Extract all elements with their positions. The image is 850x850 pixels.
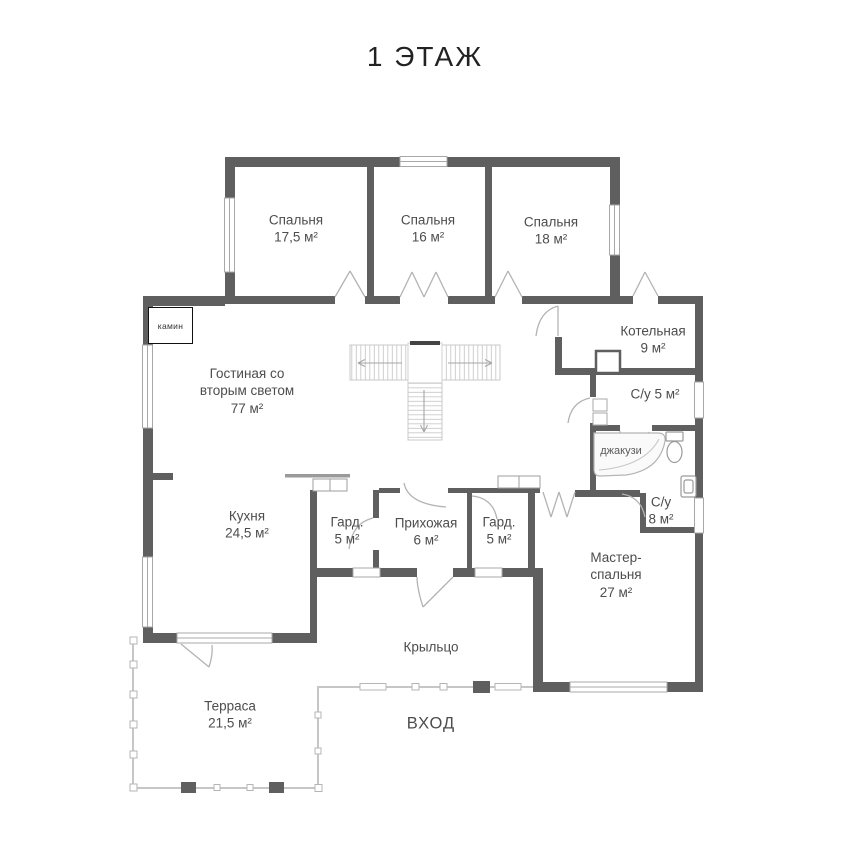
room-area: 5 м²: [331, 531, 364, 548]
room-area: 24,5 м²: [225, 525, 269, 542]
window: [475, 568, 502, 577]
room-name: ВХОД: [407, 713, 455, 734]
room-area: 27 м²: [590, 584, 641, 601]
room-label-master: Мастер- спальня 27 м²: [590, 549, 641, 601]
room-name: Терраса: [204, 698, 256, 715]
room-area: 8 м²: [648, 511, 673, 528]
wall: [533, 568, 543, 692]
window: [353, 568, 380, 577]
wall: [652, 425, 703, 431]
room-area: 18 м²: [524, 231, 578, 248]
duct-box: [596, 351, 620, 373]
door: [543, 492, 575, 517]
room-name: Прихожая: [395, 515, 458, 532]
wall: [373, 490, 379, 518]
washer-icon: [593, 399, 607, 425]
door: [404, 483, 446, 507]
room-label-hallway: Прихожая 6 м²: [395, 515, 458, 550]
room-name: Спальня: [269, 212, 323, 229]
room-name: С/у 5 м²: [630, 385, 679, 402]
room-area: 6 м²: [395, 532, 458, 549]
room-label-porch: Крыльцо: [403, 638, 458, 655]
wall: [143, 633, 177, 643]
fireplace-box: камин: [148, 307, 193, 344]
terrace-posts: [130, 637, 521, 792]
toilet-icon: [666, 432, 683, 463]
wall: [143, 473, 173, 480]
door: [335, 271, 365, 297]
room-name: Спальня: [401, 212, 455, 229]
room-label-terrace: Терраса 21,5 м²: [204, 698, 256, 733]
wall: [448, 296, 495, 304]
wall: [143, 296, 225, 306]
wall: [225, 296, 335, 304]
fireplace-label: камин: [158, 321, 183, 331]
wall: [143, 428, 153, 557]
terrace-pillar: [269, 782, 284, 793]
staircase: [350, 341, 500, 440]
page-title: 1 ЭТАЖ: [367, 41, 483, 73]
window: [695, 382, 704, 418]
room-name: Кухня: [225, 508, 269, 525]
wall: [533, 682, 570, 692]
room-area: 17,5 м²: [269, 229, 323, 246]
room-label-living: Гостиная со вторым светом 77 м²: [200, 365, 294, 417]
room-name: Гард.: [483, 514, 516, 531]
wall: [596, 425, 620, 431]
wall: [311, 568, 353, 577]
door: [633, 272, 658, 296]
room-name: Крыльцо: [403, 638, 458, 655]
stair-landing-edge: [410, 341, 440, 345]
wall: [667, 682, 703, 692]
room-area: 16 м²: [401, 229, 455, 246]
wall: [528, 477, 535, 570]
stair-flight-down: [408, 383, 442, 440]
door: [181, 644, 212, 667]
room-label-wc5: С/у 5 м²: [630, 385, 679, 402]
room-name: Котельная: [620, 323, 685, 340]
door: [568, 398, 590, 423]
stair-landing: [408, 343, 442, 383]
wall: [555, 337, 562, 375]
door: [417, 577, 453, 607]
room-label-wardrobe1: Гард. 5 м²: [331, 514, 364, 549]
wall: [562, 368, 703, 375]
window: [695, 498, 704, 533]
door: [495, 271, 522, 297]
room-name: Гард.: [331, 514, 364, 531]
wall: [380, 568, 417, 577]
wall: [590, 375, 596, 397]
doors: [181, 271, 658, 667]
wall: [522, 296, 633, 304]
wall: [373, 550, 379, 568]
wall: [379, 488, 400, 493]
terrace-border: [133, 640, 533, 788]
room-name: вторым светом: [200, 382, 294, 399]
wall: [310, 490, 317, 643]
room-name: С/у: [648, 494, 673, 511]
room-label-bedroom1: Спальня 17,5 м²: [269, 212, 323, 247]
wall: [448, 488, 540, 493]
porch-pillar: [473, 681, 490, 693]
sink-icon: [681, 476, 696, 497]
room-name: Мастер-: [590, 549, 641, 566]
entrance-label: ВХОД: [407, 713, 455, 734]
room-area: 21,5 м²: [204, 715, 256, 732]
wall: [365, 296, 400, 304]
room-label-boiler: Котельная 9 м²: [620, 323, 685, 358]
room-label-bedroom3: Спальня 18 м²: [524, 214, 578, 249]
terrace-pillar: [181, 782, 196, 793]
room-area: 9 м²: [620, 340, 685, 357]
wall: [367, 167, 374, 296]
terrace-outline: [130, 637, 533, 793]
room-area: 5 м²: [483, 531, 516, 548]
room-label-bedroom2: Спальня 16 м²: [401, 212, 455, 247]
wall: [467, 493, 472, 570]
wall: [285, 474, 350, 478]
room-area: 77 м²: [200, 400, 294, 417]
room-label-kitchen: Кухня 24,5 м²: [225, 508, 269, 543]
room-name: Спальня: [524, 214, 578, 231]
floor-plan: 1 ЭТАЖ: [0, 0, 850, 850]
room-label-wc8: С/у 8 м²: [648, 494, 673, 529]
room-label-jacuzzi: джакузи: [600, 444, 642, 458]
room-name: Гостиная со: [200, 365, 294, 382]
room-name: джакузи: [600, 444, 642, 458]
door: [400, 272, 448, 297]
room-name: спальня: [590, 566, 641, 583]
wall: [453, 568, 475, 577]
wall: [485, 167, 492, 296]
door: [536, 306, 558, 336]
room-label-wardrobe2: Гард. 5 м²: [483, 514, 516, 549]
